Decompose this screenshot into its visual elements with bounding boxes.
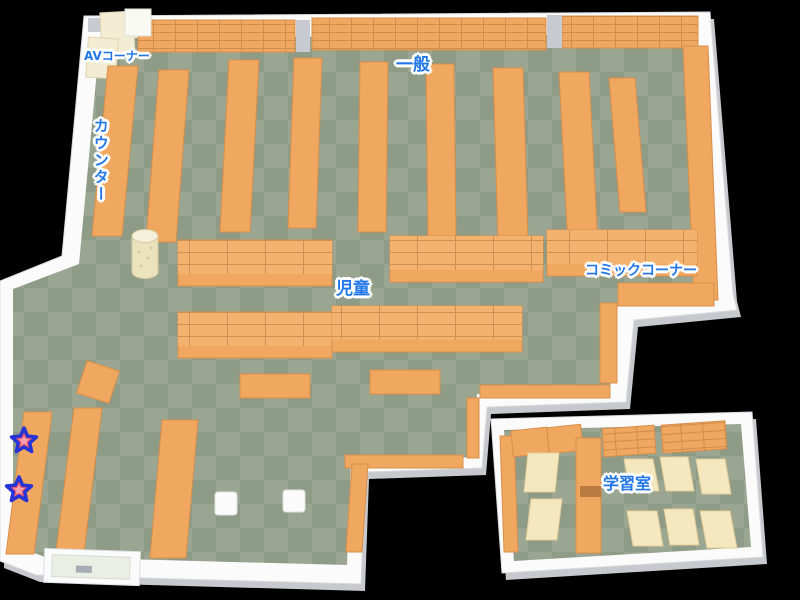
low-shelf: [178, 240, 332, 286]
entrance: [43, 548, 140, 585]
bookshelf: [480, 385, 610, 398]
area-label-general: 一般: [396, 57, 430, 75]
bookshelf: [600, 303, 617, 383]
wall-shelf: [661, 421, 727, 453]
floor-map-canvas: [0, 0, 800, 600]
bookshelf: [358, 62, 388, 232]
bookshelf: [426, 64, 456, 236]
study-desk: [627, 511, 663, 546]
low-shelf: [390, 236, 543, 282]
kiosk-cylinder: [132, 230, 158, 279]
pillar: [88, 18, 101, 32]
pillar: [547, 15, 562, 48]
bookshelf: [618, 283, 714, 306]
low-table: [240, 374, 310, 398]
low-table: [370, 370, 440, 394]
area-label-study-room: 学習室: [603, 476, 651, 493]
study-room: [491, 412, 767, 580]
chair: [283, 490, 305, 512]
low-shelf: [332, 306, 522, 352]
area-label-counter: カウンター: [92, 118, 108, 203]
bookshelf: [467, 398, 479, 458]
area-label-children: 児童: [336, 281, 370, 299]
study-desk: [526, 499, 562, 540]
bookshelf: [288, 58, 322, 228]
study-desk: [524, 453, 559, 492]
study-desk: [664, 509, 699, 545]
bookshelf: [493, 68, 528, 240]
pillar: [296, 20, 310, 52]
library-floor-map: AVコーナー カウンター 一般 児童 コミックコーナー 学習室 const da…: [0, 0, 800, 600]
study-desk: [700, 511, 737, 548]
chair: [215, 492, 237, 515]
wall-shelf: [602, 425, 656, 457]
study-desk: [660, 457, 694, 491]
area-label-comic-corner: コミックコーナー: [585, 264, 697, 279]
wall-shelf-rows: [88, 15, 698, 52]
bookshelf: [511, 427, 550, 457]
study-desk: [696, 459, 731, 494]
area-label-av-corner: AVコーナー: [84, 50, 150, 63]
low-shelf: [178, 312, 332, 358]
